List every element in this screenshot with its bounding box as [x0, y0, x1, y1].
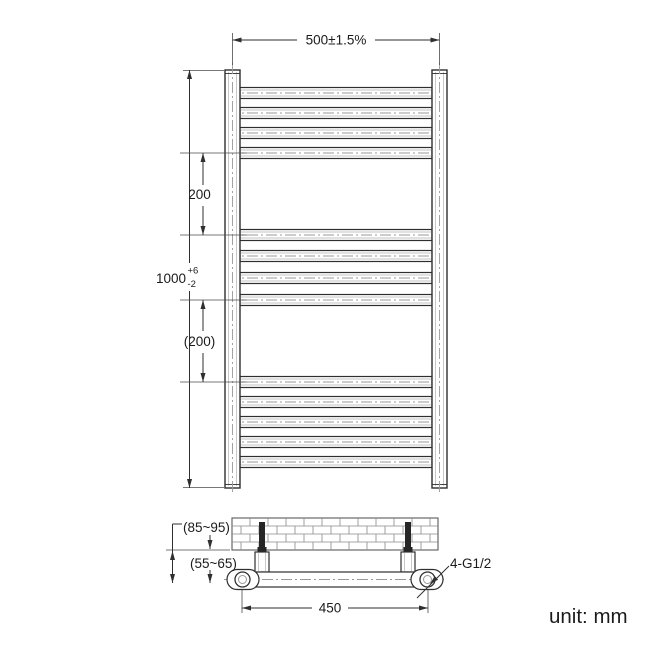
- towel-radiator-drawing: 500±1.5% 1000 +6 -2 200 (200): [0, 0, 650, 650]
- arrowhead: [233, 38, 242, 43]
- height-dimension-value: 1000: [156, 271, 186, 286]
- arrowhead: [187, 70, 192, 79]
- arrowhead: [242, 606, 251, 611]
- width-dimension: 500±1.5%: [233, 33, 440, 66]
- wall-clearance-outer-label: (85~95): [183, 520, 230, 535]
- connection-spacing-label: 450: [319, 601, 342, 616]
- arrowhead: [170, 551, 175, 560]
- rung-gap-lower-label: (200): [184, 334, 216, 349]
- height-dimension: 1000 +6 -2: [156, 70, 224, 488]
- side-view: [224, 518, 446, 590]
- arrowhead: [208, 540, 213, 549]
- height-tolerance-lower: -2: [188, 279, 196, 290]
- rung-gap-upper-label: 200: [188, 187, 211, 202]
- connection-spacing-dimension: 450: [242, 590, 428, 616]
- left-end-fitting: [227, 570, 259, 590]
- arrowhead: [201, 300, 206, 309]
- arrowhead: [170, 574, 175, 583]
- fixing-bolt-nut: [258, 547, 267, 552]
- right-post: [432, 63, 447, 495]
- arrowhead: [201, 226, 206, 235]
- right-end-fitting: [411, 570, 443, 590]
- left-post: [225, 63, 240, 495]
- rung-layer: [228, 88, 444, 468]
- technical-drawing-page: 500±1.5% 1000 +6 -2 200 (200): [0, 0, 650, 650]
- arrowhead: [201, 373, 206, 382]
- wall-clearance-inner-label: (55~65): [190, 556, 237, 571]
- arrowhead: [431, 38, 440, 43]
- arrowhead: [201, 153, 206, 162]
- thread-callout-label: 4-G1/2: [450, 556, 491, 571]
- arrowhead: [419, 606, 428, 611]
- fixing-bolt-nut: [404, 547, 413, 552]
- wall-clearance-dimensions: (85~95) (55~65): [166, 520, 237, 583]
- unit-note: unit: mm: [549, 605, 628, 628]
- front-view: [225, 63, 447, 495]
- width-dimension-label: 500±1.5%: [306, 33, 367, 48]
- arrowhead: [208, 574, 213, 583]
- wall-bracket: [255, 552, 269, 572]
- height-tolerance-upper: +6: [188, 266, 199, 277]
- wall-bracket: [401, 552, 415, 572]
- arrowhead: [187, 479, 192, 488]
